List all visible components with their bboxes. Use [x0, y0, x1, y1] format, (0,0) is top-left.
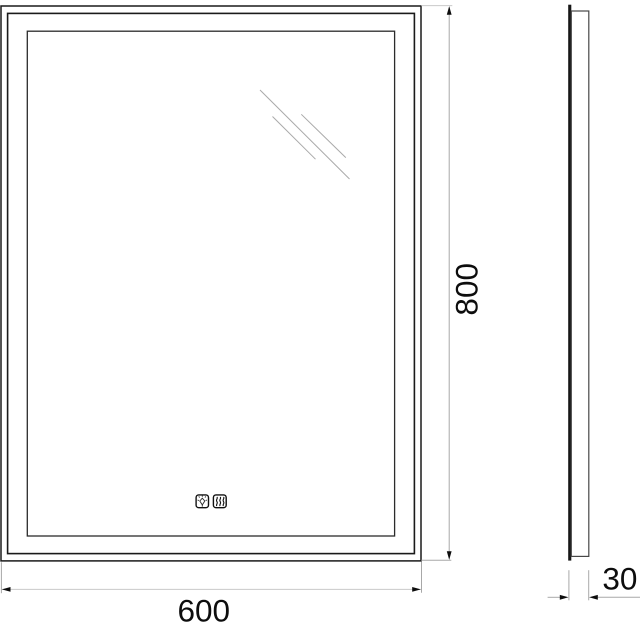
svg-text:800: 800: [449, 263, 485, 316]
svg-text:600: 600: [178, 593, 231, 624]
svg-text:30: 30: [602, 561, 637, 597]
